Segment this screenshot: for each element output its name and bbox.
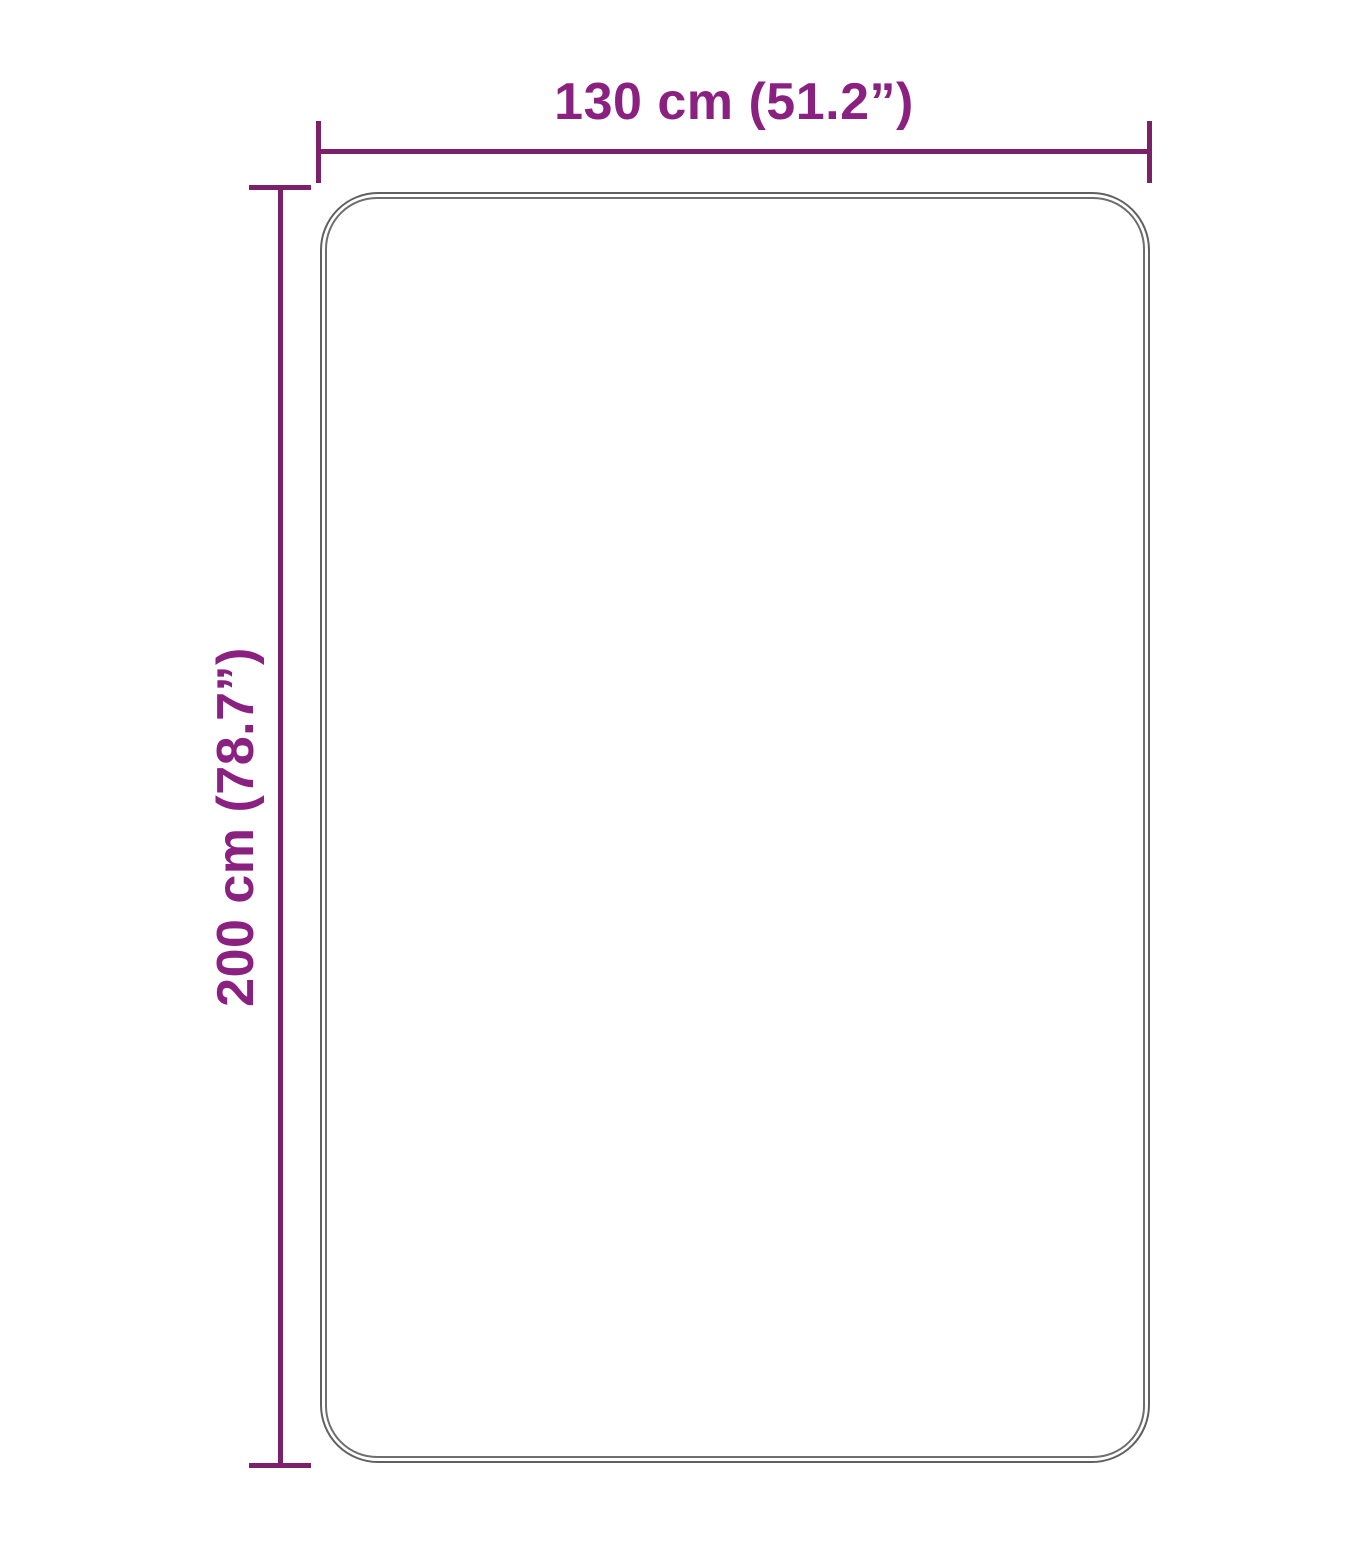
width-dimension-tick-left (316, 121, 321, 183)
height-dimension-tick-bottom (249, 1463, 311, 1468)
height-dimension-label: 200 cm (78.7”) (206, 647, 266, 1007)
rug-outline-inner-line (325, 197, 1145, 1458)
width-dimension-tick-right (1147, 121, 1152, 183)
height-dimension-line (278, 187, 283, 1468)
rug-outline (320, 192, 1150, 1463)
width-dimension-label: 130 cm (51.2”) (554, 72, 914, 132)
rug-dimension-diagram: 130 cm (51.2”) 200 cm (78.7”) (0, 0, 1360, 1555)
height-dimension-tick-top (249, 185, 311, 190)
width-dimension-line (318, 149, 1151, 154)
